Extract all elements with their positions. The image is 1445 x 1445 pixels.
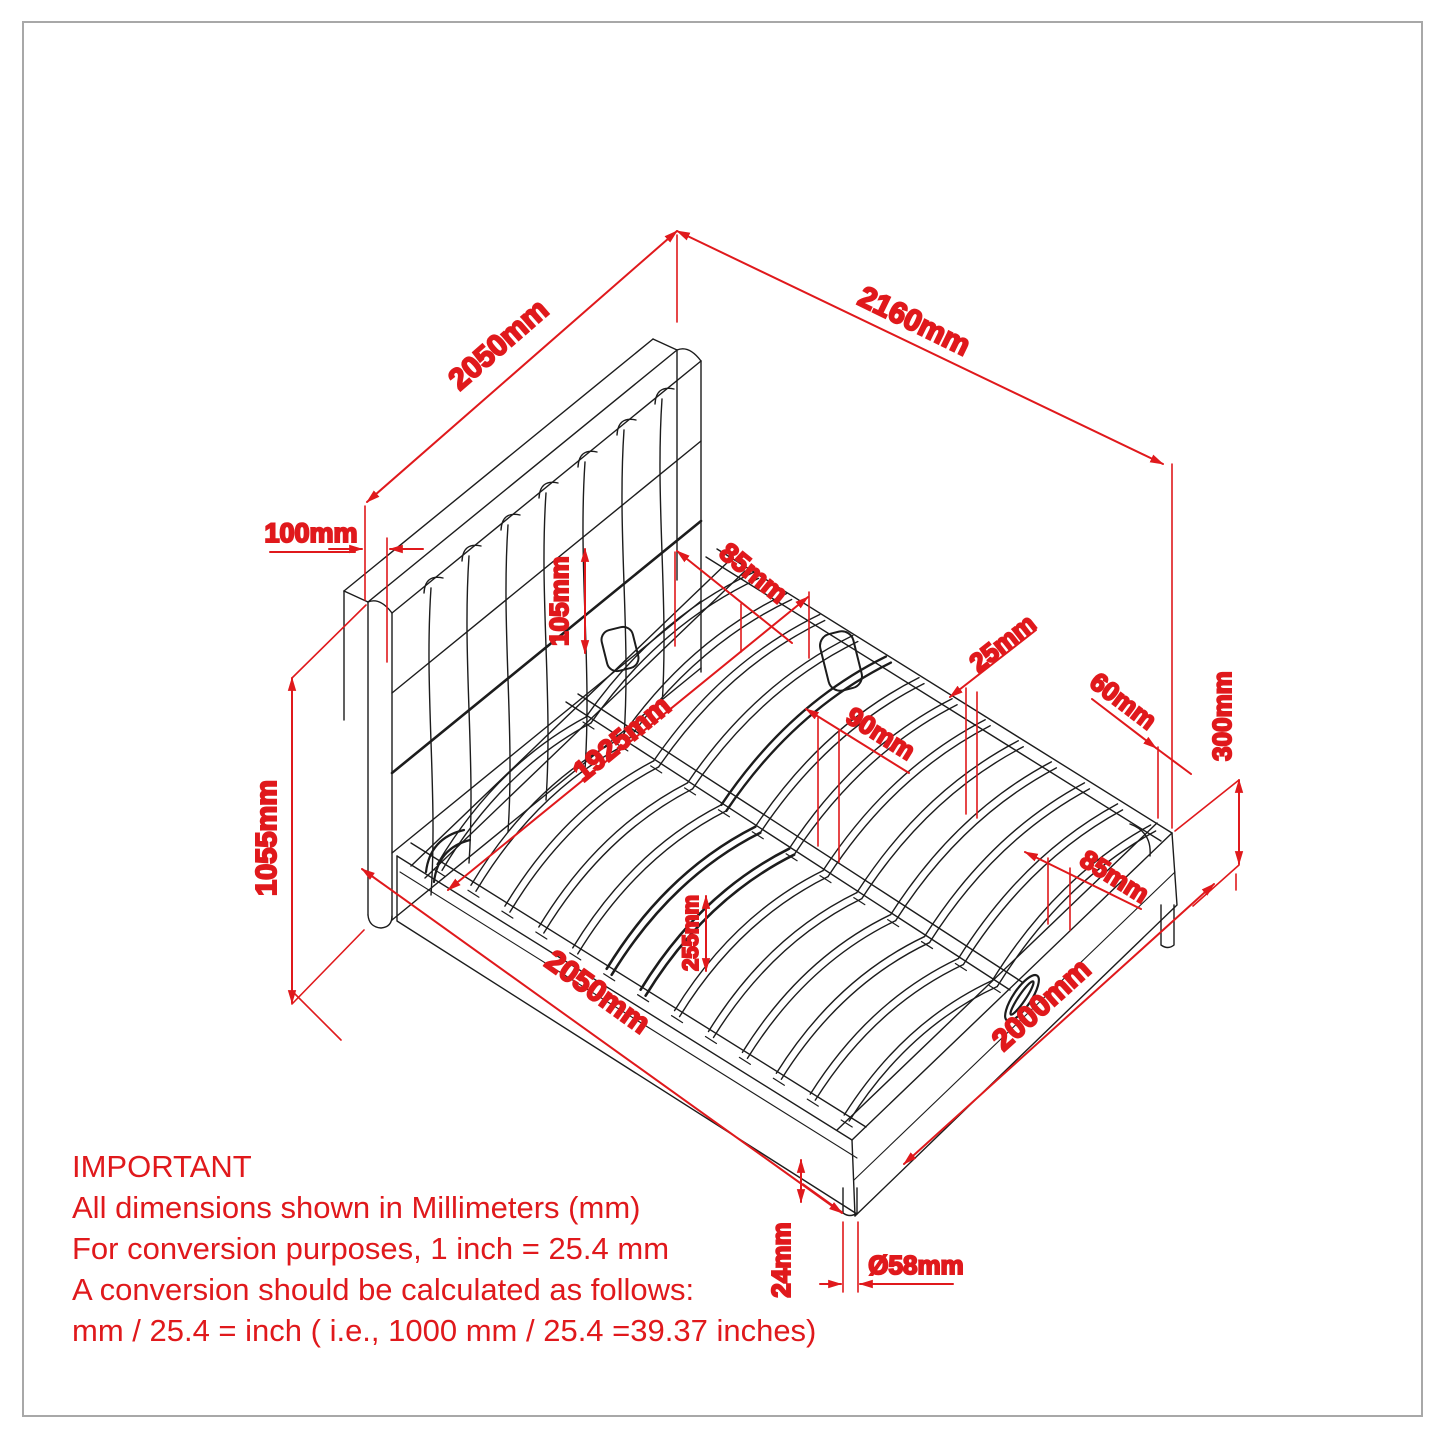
dim-rail-height: 300mm — [1175, 671, 1239, 906]
note-title: IMPORTANT — [72, 1146, 816, 1187]
dim-label-leg-diameter: Ø58mm — [868, 1250, 963, 1280]
dim-slat-ref: 255mm — [678, 895, 706, 971]
dim-slat-thickness: 25mm — [950, 608, 1041, 818]
note-line: All dimensions shown in Millimeters (mm) — [72, 1187, 816, 1228]
dim-head-rail-width: 85mm — [675, 537, 793, 652]
bed-drawing — [344, 339, 1177, 1216]
dim-headboard-height: 1055mm — [251, 605, 366, 1040]
dim-leg-diameter: Ø58mm — [820, 1222, 964, 1292]
dim-label-inner-width: 1925mm — [567, 690, 677, 789]
dim-inner-width: 1925mm — [448, 592, 809, 890]
drawing-sheet: 2050mm 2160mm 100mm 105mm 8 — [0, 0, 1445, 1445]
dim-label-rail-height: 300mm — [1207, 671, 1237, 761]
headboard-outline — [344, 339, 701, 928]
dim-label-headboard-width-top: 2050mm — [443, 293, 555, 397]
dim-label-headboard-thickness: 100mm — [264, 518, 357, 548]
note-line: mm / 25.4 = inch ( i.e., 1000 mm / 25.4 … — [72, 1310, 816, 1351]
dim-headboard-clearance: 105mm — [544, 549, 585, 653]
dim-label-headboard-clearance: 105mm — [544, 556, 574, 646]
dim-slat-spacing: 90mm — [806, 701, 921, 862]
dim-headboard-width-top: 2050mm — [365, 231, 677, 600]
dim-label-side-rail-length: 2050mm — [539, 944, 656, 1041]
dim-label-headboard-height: 1055mm — [251, 780, 283, 896]
note-line: A conversion should be calculated as fol… — [72, 1269, 816, 1310]
important-note: IMPORTANT All dimensions shown in Millim… — [72, 1146, 816, 1351]
dim-label-slat-thickness: 25mm — [964, 608, 1042, 678]
note-line: For conversion purposes, 1 inch = 25.4 m… — [72, 1228, 816, 1269]
dimension-annotations: 2050mm 2160mm 100mm 105mm 8 — [251, 231, 1239, 1298]
dim-label-slat-ref: 255mm — [678, 895, 703, 971]
dim-label-head-rail-width: 85mm — [714, 537, 794, 609]
dim-label-corner-offset: 60mm — [1084, 666, 1162, 735]
dim-corner-offset: 60mm — [1084, 666, 1191, 818]
dim-overall-length: 2160mm — [677, 231, 1172, 828]
dim-label-overall-length: 2160mm — [853, 280, 975, 362]
dim-label-foot-rail-width: 85mm — [1075, 844, 1155, 909]
bed-legs — [843, 905, 1174, 1216]
base-rails — [397, 549, 1177, 1216]
